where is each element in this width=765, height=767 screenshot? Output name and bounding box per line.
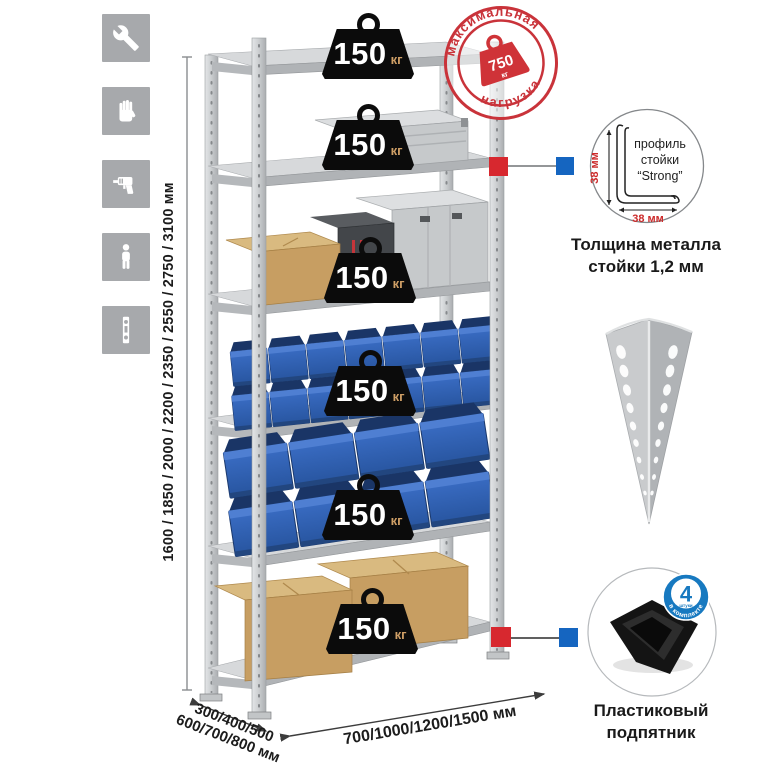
product-diagram-page: { "dimensions": { "height_options": "160…	[0, 0, 765, 765]
weight-unit: кг	[393, 389, 405, 404]
weight-value: 150	[337, 611, 390, 647]
badge-unit: штуки	[679, 603, 693, 608]
weight-value: 150	[333, 36, 386, 72]
profile-label-line3: “Strong”	[637, 169, 682, 183]
plastic-foot-detail: 4 штуки в комплекте	[583, 563, 728, 703]
weight-unit: кг	[393, 276, 405, 291]
weight-unit: кг	[391, 513, 403, 528]
profile-dim-horizontal-label: 38 мм	[632, 213, 664, 225]
profile-label-line2: стойки	[641, 153, 679, 167]
angle-post-image	[606, 319, 692, 524]
height-dimension-line	[182, 57, 192, 690]
weight-unit: кг	[395, 627, 407, 642]
profile-caption-line2: стойки 1,2 мм	[571, 256, 721, 278]
weight-value: 150	[335, 373, 388, 409]
profile-caption-line1: Толщина металла	[571, 234, 721, 256]
profile-label-line1: профиль	[634, 137, 686, 151]
drill-icon	[102, 160, 150, 208]
shelf-load-weight: 150кг	[322, 104, 414, 170]
foot-callout-connector	[491, 627, 578, 647]
quantity-badge: 4 штуки в комплекте	[663, 574, 709, 620]
shelf-load-weight: 150кг	[324, 350, 416, 416]
person-icon	[102, 233, 150, 281]
weight-value: 150	[333, 127, 386, 163]
weight-value: 150	[335, 260, 388, 296]
foot-caption: Пластиковый подпятник	[594, 700, 709, 744]
profile-callout-connector	[489, 157, 574, 176]
profile-caption: Толщина металла стойки 1,2 мм	[571, 234, 721, 278]
shelf-load-weight: 150кг	[324, 237, 416, 303]
shelf-load-weight: 150кг	[322, 13, 414, 79]
foot-caption-line1: Пластиковый	[594, 700, 709, 722]
weight-unit: кг	[391, 143, 403, 158]
gloves-icon	[102, 87, 150, 135]
post-profile-icon	[102, 306, 150, 354]
max-load-stamp: максимальная нагрузка 750 кг	[439, 1, 563, 125]
shelf-load-weight: 150кг	[322, 474, 414, 540]
post-profile-detail: 38 мм 38 мм профиль стойки “Strong”	[585, 106, 713, 230]
wrench-icon	[102, 14, 150, 62]
profile-dim-vertical-label: 38 мм	[589, 152, 601, 184]
shelf-load-weight: 150кг	[326, 588, 418, 654]
height-options-label: 1600 / 1850 / 2000 / 2200 / 2350 / 2550 …	[161, 182, 177, 561]
foot-caption-line2: подпятник	[594, 722, 709, 744]
weight-unit: кг	[391, 52, 403, 67]
weight-value: 150	[333, 497, 386, 533]
